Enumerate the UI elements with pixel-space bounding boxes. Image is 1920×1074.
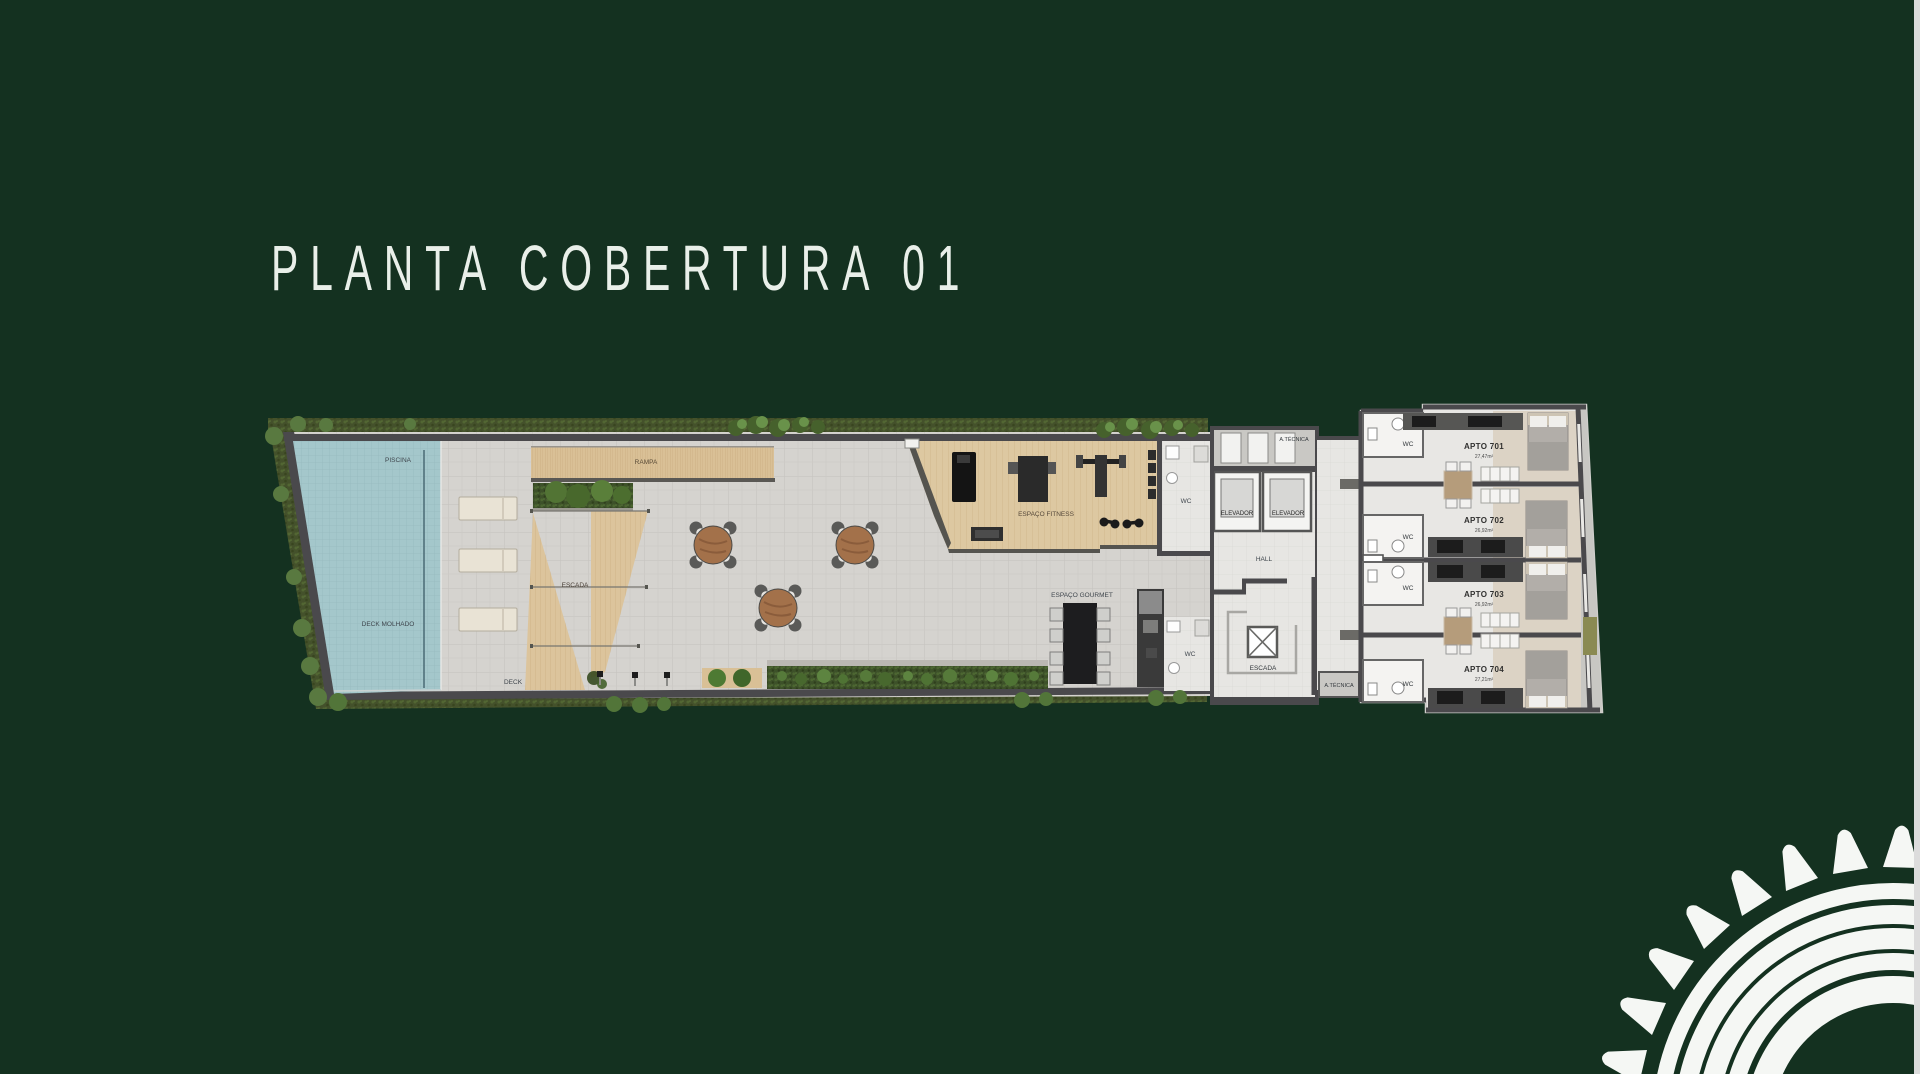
svg-text:WC: WC — [1185, 651, 1196, 658]
svg-text:HALL: HALL — [1256, 556, 1273, 563]
svg-text:WC: WC — [1181, 498, 1192, 505]
svg-text:DECK: DECK — [504, 679, 523, 686]
svg-text:APTO 703: APTO 703 — [1464, 590, 1504, 599]
svg-text:ELEVADOR: ELEVADOR — [1272, 511, 1305, 517]
svg-text:ESPAÇO GOURMET: ESPAÇO GOURMET — [1051, 592, 1113, 599]
svg-text:A.TÉCNICA: A.TÉCNICA — [1324, 682, 1354, 689]
svg-text:26,92m²: 26,92m² — [1475, 528, 1494, 534]
svg-text:WC: WC — [1403, 681, 1414, 688]
svg-text:A.TÉCNICA: A.TÉCNICA — [1279, 436, 1309, 443]
svg-text:APTO 702: APTO 702 — [1464, 516, 1504, 525]
svg-text:RAMPA: RAMPA — [635, 459, 658, 466]
svg-text:ESPAÇO FITNESS: ESPAÇO FITNESS — [1018, 511, 1075, 518]
svg-text:27,47m²: 27,47m² — [1475, 454, 1494, 460]
svg-text:27,21m²: 27,21m² — [1475, 677, 1494, 683]
svg-text:WC: WC — [1403, 585, 1414, 592]
svg-text:APTO 704: APTO 704 — [1464, 665, 1504, 674]
svg-text:26,92m²: 26,92m² — [1475, 602, 1494, 608]
svg-text:ESCADA: ESCADA — [1250, 665, 1277, 672]
svg-text:WC: WC — [1403, 534, 1414, 541]
svg-text:APTO 701: APTO 701 — [1464, 442, 1504, 451]
svg-text:ESCADA: ESCADA — [562, 582, 589, 589]
svg-text:ELEVADOR: ELEVADOR — [1221, 511, 1254, 517]
svg-text:WC: WC — [1403, 441, 1414, 448]
svg-text:PISCINA: PISCINA — [385, 457, 412, 464]
svg-text:DECK MOLHADO: DECK MOLHADO — [362, 621, 415, 628]
